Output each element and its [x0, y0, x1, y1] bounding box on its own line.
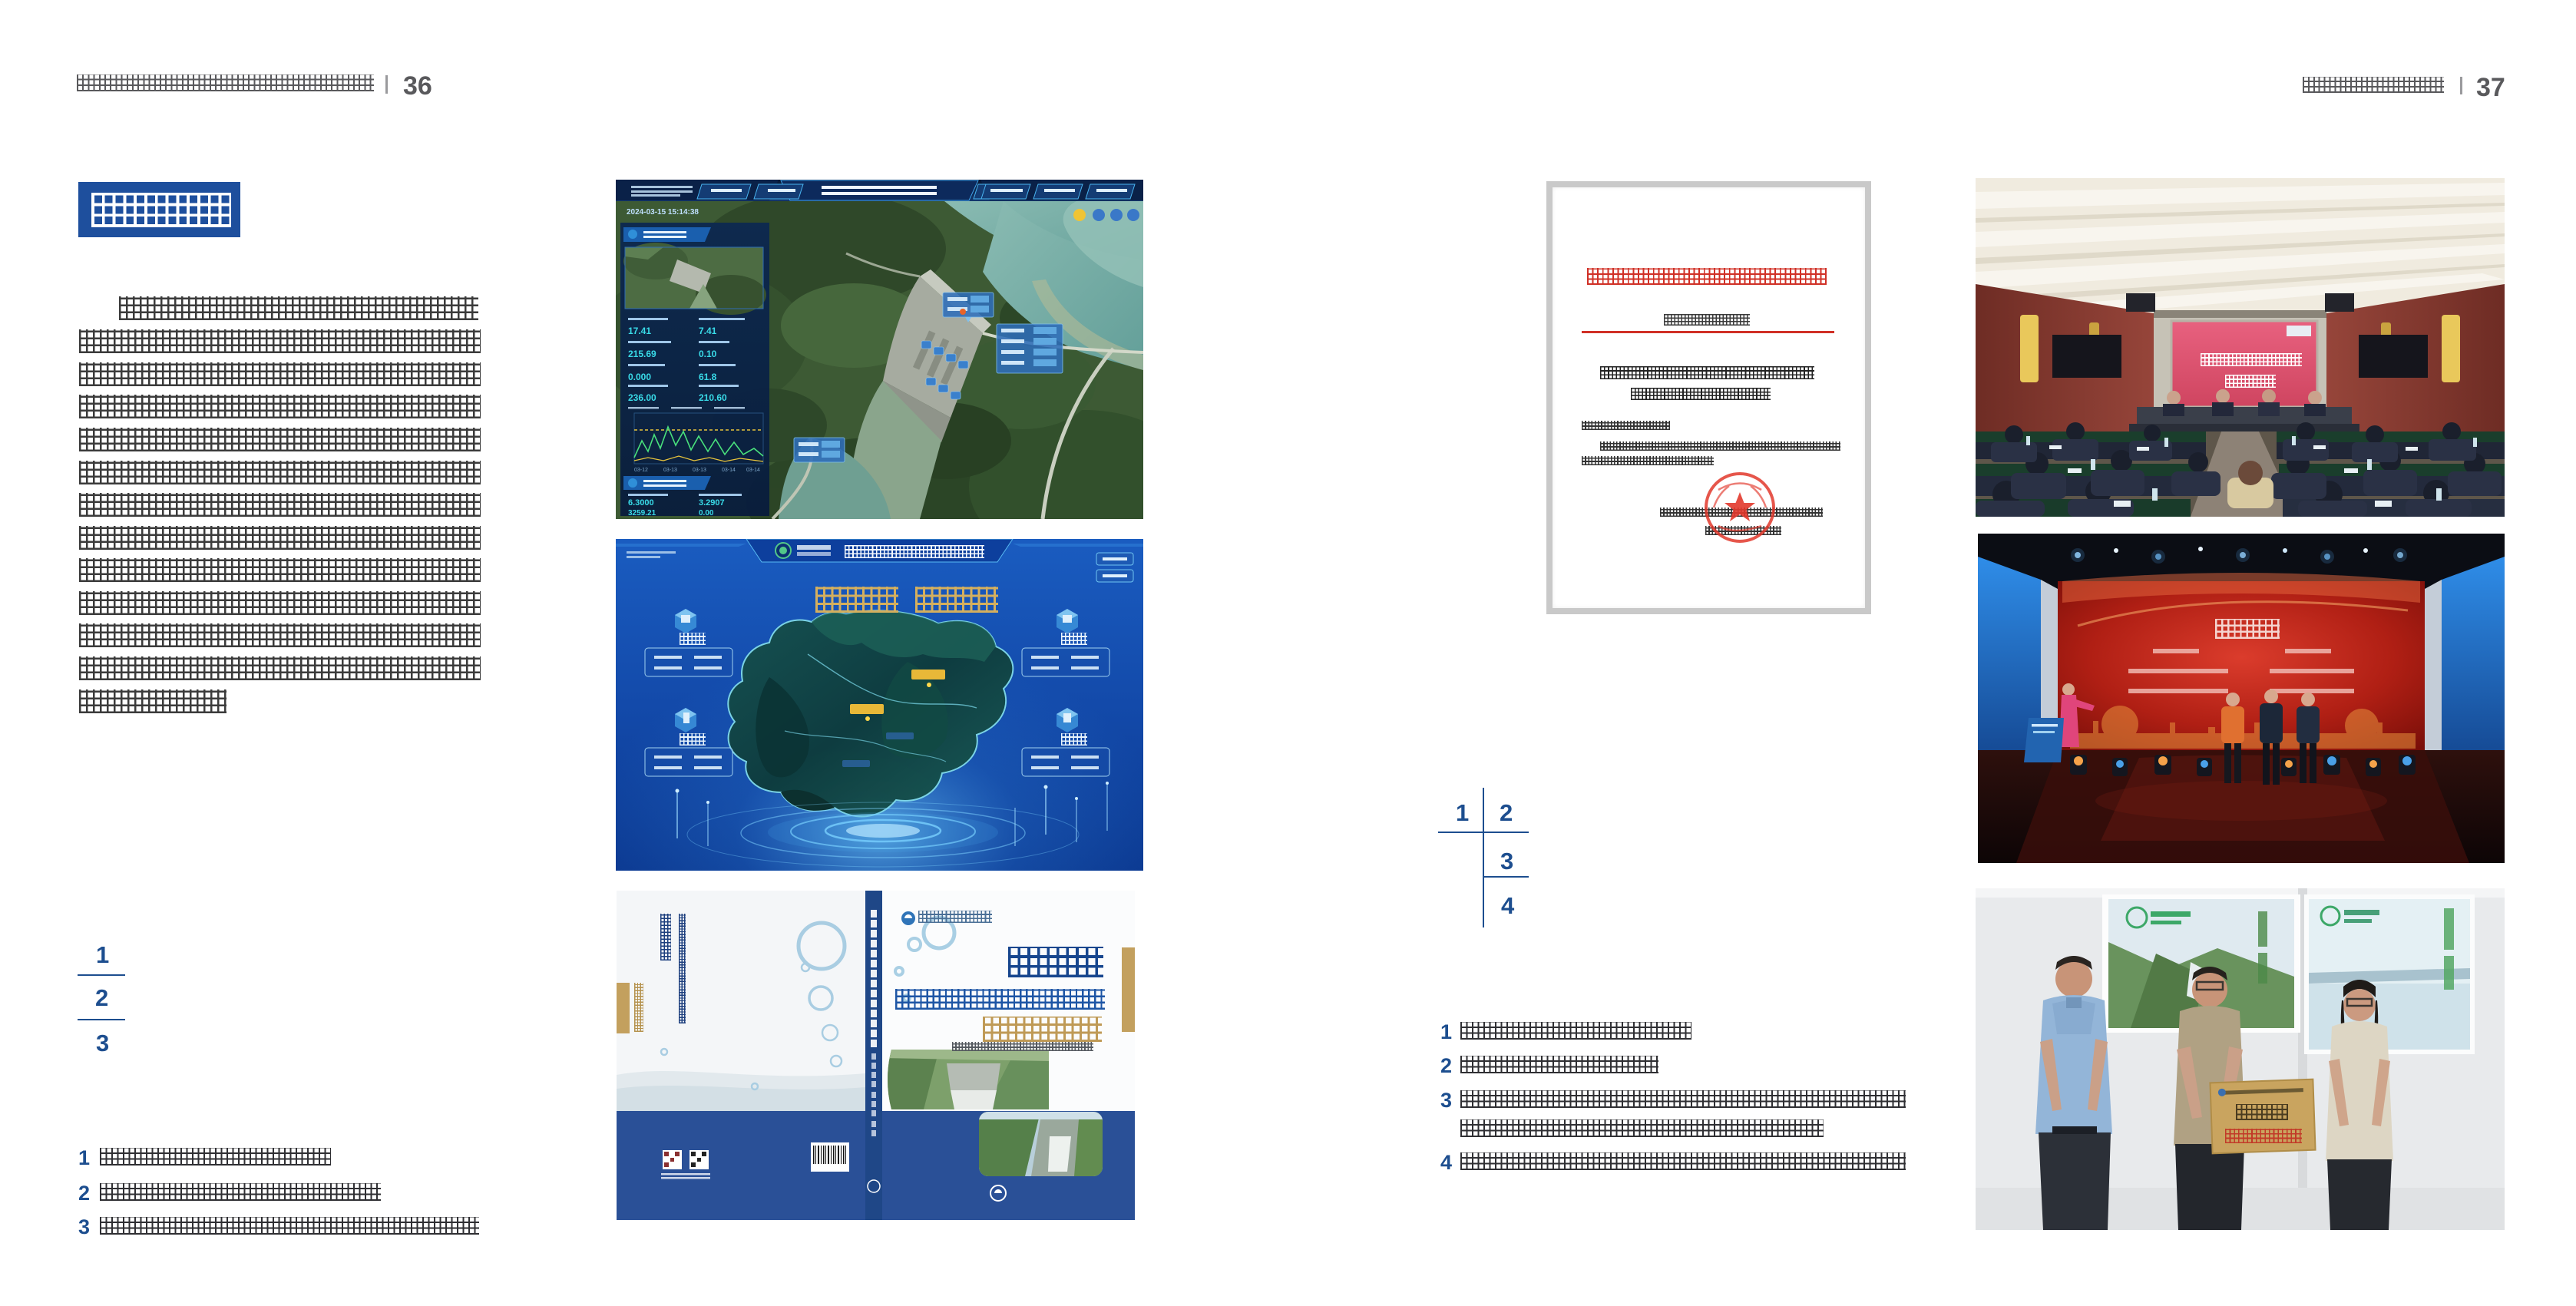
svg-text:61.8: 61.8 — [699, 372, 717, 382]
svg-text:2024-03-15 15:14:38: 2024-03-15 15:14:38 — [627, 208, 699, 217]
svg-text:6.3000: 6.3000 — [628, 498, 654, 508]
svg-text:210.60: 210.60 — [699, 392, 727, 403]
svg-text:236.00: 236.00 — [628, 392, 656, 403]
svg-text:03-14: 03-14 — [722, 468, 736, 473]
svg-text:03-13: 03-13 — [693, 468, 706, 473]
svg-text:215.69: 215.69 — [628, 349, 656, 359]
svg-text:03-12: 03-12 — [634, 468, 648, 473]
svg-text:0.000: 0.000 — [628, 372, 651, 382]
svg-text:0.10: 0.10 — [699, 349, 717, 359]
svg-text:3259.21: 3259.21 — [628, 509, 656, 517]
svg-text:3.2907: 3.2907 — [699, 498, 725, 508]
svg-text:17.41: 17.41 — [628, 326, 651, 336]
svg-text:7.41: 7.41 — [699, 326, 717, 336]
svg-text:0.00: 0.00 — [699, 509, 714, 517]
svg-text:03-14: 03-14 — [746, 468, 760, 473]
svg-text:03-13: 03-13 — [663, 468, 677, 473]
